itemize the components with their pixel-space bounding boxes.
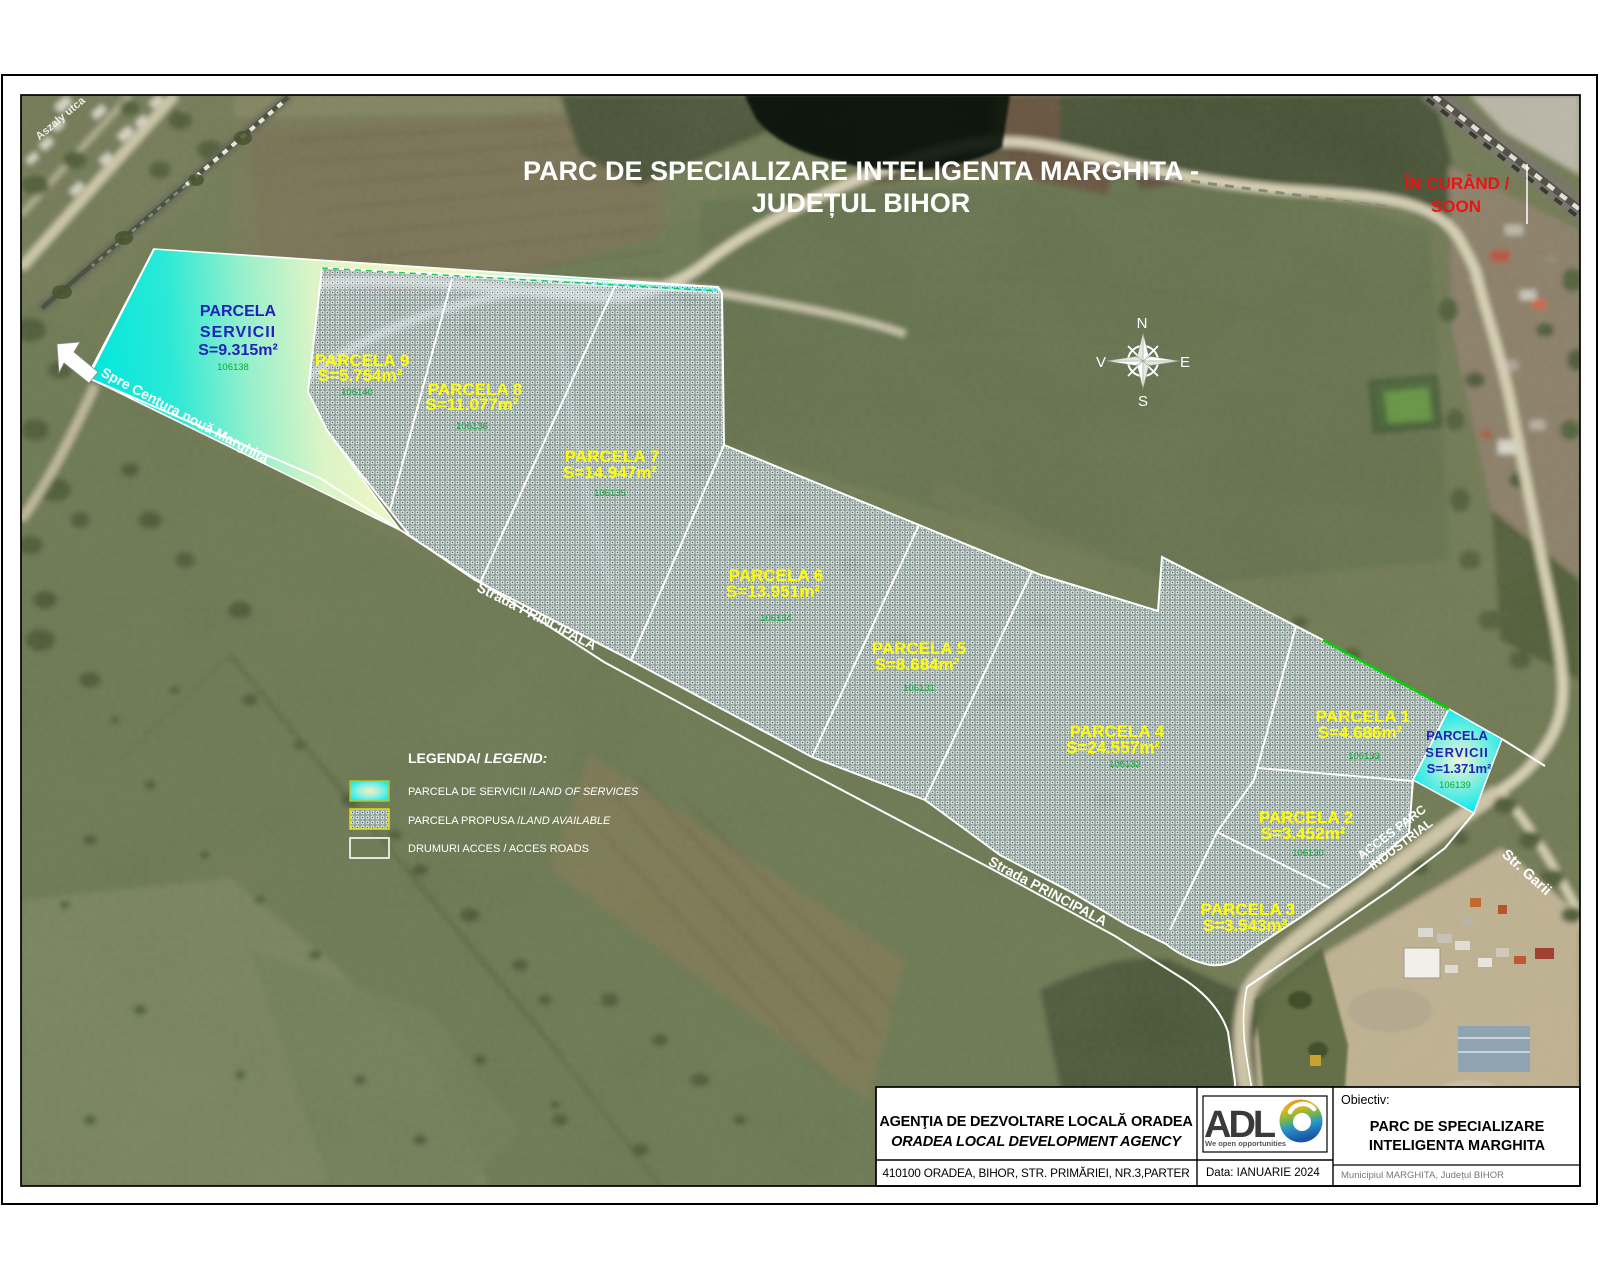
svg-text:SERVICII: SERVICII [200,324,276,341]
svg-text:106132: 106132 [1109,759,1141,770]
svg-text:106130: 106130 [1292,848,1324,859]
svg-text:INTELIGENTA MARGHITA: INTELIGENTA MARGHITA [1369,1138,1546,1154]
svg-text:106140: 106140 [341,387,373,398]
svg-text:Municipiul MARGHITA, Județul B: Municipiul MARGHITA, Județul BIHOR [1341,1170,1504,1181]
svg-text:PARC DE SPECIALIZARE INTELIGEN: PARC DE SPECIALIZARE INTELIGENTA MARGHIT… [523,156,1199,186]
svg-text:S=1.371m²: S=1.371m² [1427,761,1492,776]
svg-text:DRUMURI ACCES / ACCES ROADS: DRUMURI ACCES / ACCES ROADS [408,843,589,855]
svg-text:S=11.077m²: S=11.077m² [425,395,518,414]
svg-text:SERVICII: SERVICII [1425,745,1488,760]
svg-text:S=24.557m²: S=24.557m² [1066,738,1160,757]
svg-text:106131: 106131 [903,683,935,694]
svg-text:Data: IANUARIE 2024: Data: IANUARIE 2024 [1206,1167,1320,1179]
svg-text:S=5.754m²: S=5.754m² [318,366,403,385]
svg-text:106138: 106138 [217,362,249,373]
svg-text:ÎN CURÂND /: ÎN CURÂND / [1404,174,1510,193]
svg-text:E: E [1180,354,1190,371]
svg-text:Obiectiv:: Obiectiv: [1341,1093,1390,1107]
svg-text:106134: 106134 [760,613,792,624]
svg-text:N: N [1137,315,1148,332]
svg-text:PARCELA: PARCELA [1426,728,1488,743]
svg-text:JUDEȚUL BIHOR: JUDEȚUL BIHOR [752,188,971,218]
svg-text:106133: 106133 [1348,751,1380,762]
svg-text:S=3.543m²: S=3.543m² [1203,916,1288,935]
svg-text:PARCELA: PARCELA [200,303,277,320]
svg-text:106136: 106136 [456,421,488,432]
svg-text:We open opportunities: We open opportunities [1205,1139,1286,1148]
svg-text:S=14.947m²: S=14.947m² [563,463,657,482]
svg-text:106139: 106139 [1439,780,1471,791]
svg-text:PARC DE SPECIALIZARE: PARC DE SPECIALIZARE [1370,1119,1545,1135]
svg-text:106135: 106135 [594,488,626,499]
svg-text:S=4.686m²: S=4.686m² [1318,723,1403,742]
svg-text:AGENŢIA DE DEZVOLTARE LOCALĂ O: AGENŢIA DE DEZVOLTARE LOCALĂ ORADEA [879,1113,1193,1130]
svg-text:ORADEA LOCAL DEVELOPMENT AGENC: ORADEA LOCAL DEVELOPMENT AGENCY [891,1134,1182,1150]
svg-text:LEGENDA/ LEGEND:: LEGENDA/ LEGEND: [408,750,547,766]
svg-text:S=13.951m²: S=13.951m² [726,582,820,601]
svg-text:S=8.684m²: S=8.684m² [875,655,960,674]
svg-text:PARCELA DE SERVICII /LAND OF S: PARCELA DE SERVICII /LAND OF SERVICES [408,786,639,798]
svg-text:SOON: SOON [1431,197,1481,216]
svg-text:PARCELA PROPUSA /LAND AVAILABL: PARCELA PROPUSA /LAND AVAILABLE [408,815,611,827]
svg-text:S=9.315m²: S=9.315m² [198,342,278,359]
svg-text:V: V [1096,354,1106,371]
svg-text:S: S [1138,393,1148,410]
svg-text:S=3.452m²: S=3.452m² [1261,824,1346,843]
svg-text:410100 ORADEA, BIHOR, STR. PRI: 410100 ORADEA, BIHOR, STR. PRIMĂRIEI, NR… [882,1166,1189,1180]
